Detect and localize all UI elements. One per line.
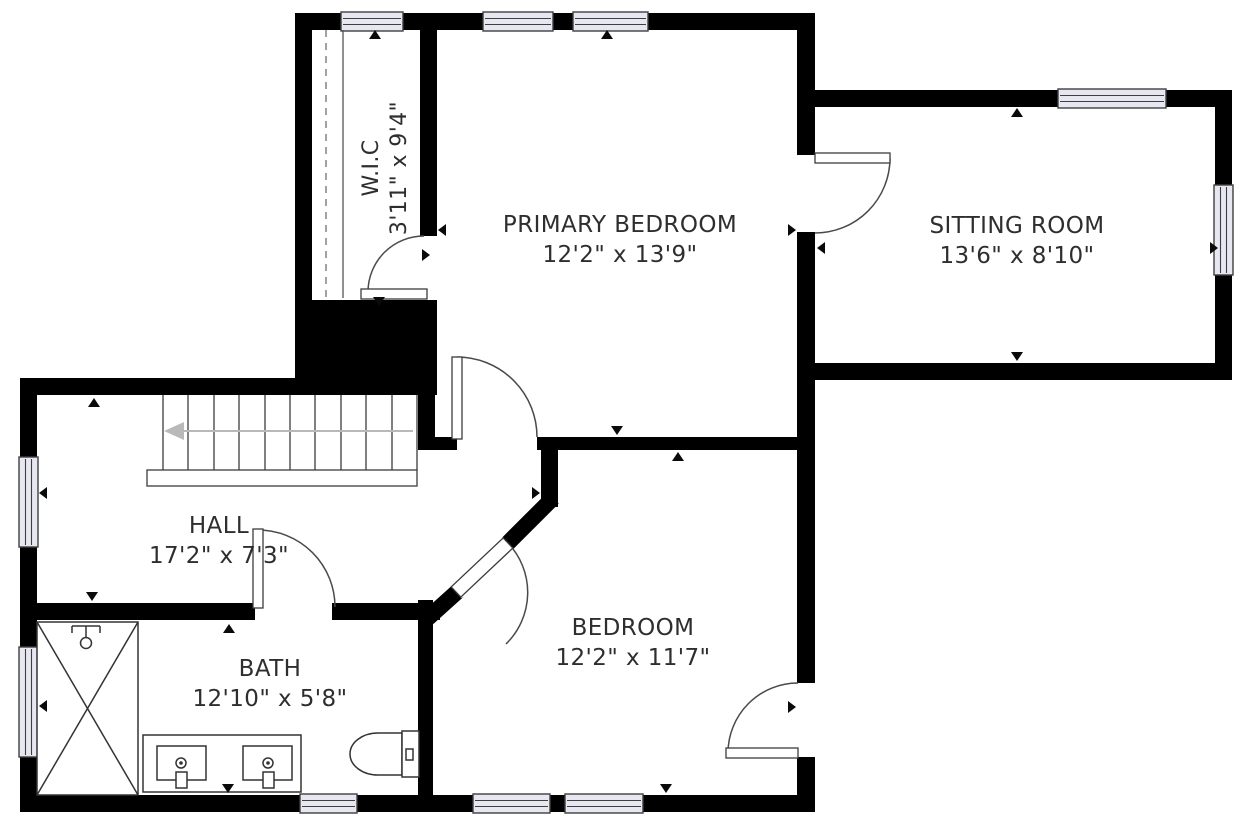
room-label-bedroom: BEDROOM 12'2" x 11'7" xyxy=(555,613,710,673)
opening-sitting-door xyxy=(795,155,817,232)
room-label-primary-bedroom: PRIMARY BEDROOM 12'2" x 13'9" xyxy=(503,210,737,270)
wall-sitting-bottom xyxy=(797,363,1232,380)
room-dimensions: 12'2" x 13'9" xyxy=(503,240,737,270)
room-dimensions: 3'11" x 9'4" xyxy=(386,101,414,235)
stairs xyxy=(147,395,417,486)
closet-interior xyxy=(326,30,343,298)
room-name: BEDROOM xyxy=(555,613,710,643)
window-sitting-top xyxy=(1058,89,1166,108)
room-name: W.I.C xyxy=(358,101,386,235)
floor-plan-canvas: W.I.C 3'11" x 9'4" PRIMARY BEDROOM 12'2"… xyxy=(0,0,1252,831)
toilet-icon xyxy=(350,731,419,777)
marker-up-icon xyxy=(88,398,100,407)
room-label-bath: BATH 12'10" x 5'8" xyxy=(192,654,347,714)
window-bedroom-bottom-2 xyxy=(565,794,643,813)
window-hall-left xyxy=(19,457,38,547)
room-name: HALL xyxy=(149,511,289,541)
marker-down-icon xyxy=(1011,352,1023,361)
marker-down-icon xyxy=(660,784,672,793)
window-primary-top-1 xyxy=(483,12,553,31)
window-wic-top xyxy=(341,12,403,31)
opening-primary-door xyxy=(457,435,537,452)
floor-plan-drawing xyxy=(0,0,1252,831)
room-label-hall: HALL 17'2" x 7'3" xyxy=(149,511,289,571)
room-dimensions: 13'6" x 8'10" xyxy=(929,241,1104,271)
stairs-direction-arrow-icon xyxy=(164,422,184,440)
marker-right-icon xyxy=(788,224,796,236)
wall-hall-top xyxy=(20,378,437,395)
window-bath-left xyxy=(19,647,38,757)
wall-diagonal-upper xyxy=(506,498,553,545)
marker-up-icon xyxy=(223,624,235,633)
door-bedroom-right xyxy=(726,683,798,758)
wall-bottom xyxy=(20,795,815,812)
opening-bath-door xyxy=(255,601,332,622)
door-primary-to-sitting xyxy=(815,153,890,233)
marker-down-icon xyxy=(86,592,98,601)
room-dimensions: 17'2" x 7'3" xyxy=(149,541,289,571)
door-hall-to-primary xyxy=(452,357,537,439)
wall-bath-right xyxy=(418,600,433,812)
window-bath-bottom xyxy=(300,794,357,813)
marker-up-icon xyxy=(672,452,684,461)
marker-right-icon xyxy=(532,487,540,499)
marker-down-icon xyxy=(611,426,623,435)
window-bedroom-bottom-1 xyxy=(473,794,550,813)
room-dimensions: 12'2" x 11'7" xyxy=(555,643,710,673)
wall-wic-left xyxy=(295,13,312,303)
marker-right-icon xyxy=(788,701,796,713)
window-sitting-right xyxy=(1214,185,1233,275)
room-name: BATH xyxy=(192,654,347,684)
marker-left-icon xyxy=(438,224,446,236)
opening-bedroom-door xyxy=(795,683,817,757)
wall-right-spine xyxy=(797,13,815,795)
wall-hall-bottom xyxy=(20,603,440,620)
marker-left-icon xyxy=(817,242,825,254)
wall-sitting-top xyxy=(797,90,1232,107)
room-label-sitting-room: SITTING ROOM 13'6" x 8'10" xyxy=(929,211,1104,271)
door-hall-to-bedroom-diagonal xyxy=(451,538,527,644)
room-dimensions: 12'10" x 5'8" xyxy=(192,684,347,714)
marker-left-icon xyxy=(39,487,47,499)
room-name: SITTING ROOM xyxy=(929,211,1104,241)
room-label-wic: W.I.C 3'11" x 9'4" xyxy=(358,101,414,235)
marker-up-icon xyxy=(1011,108,1023,117)
stair-rail xyxy=(147,470,417,486)
window-primary-top-2 xyxy=(573,12,648,31)
room-name: PRIMARY BEDROOM xyxy=(503,210,737,240)
